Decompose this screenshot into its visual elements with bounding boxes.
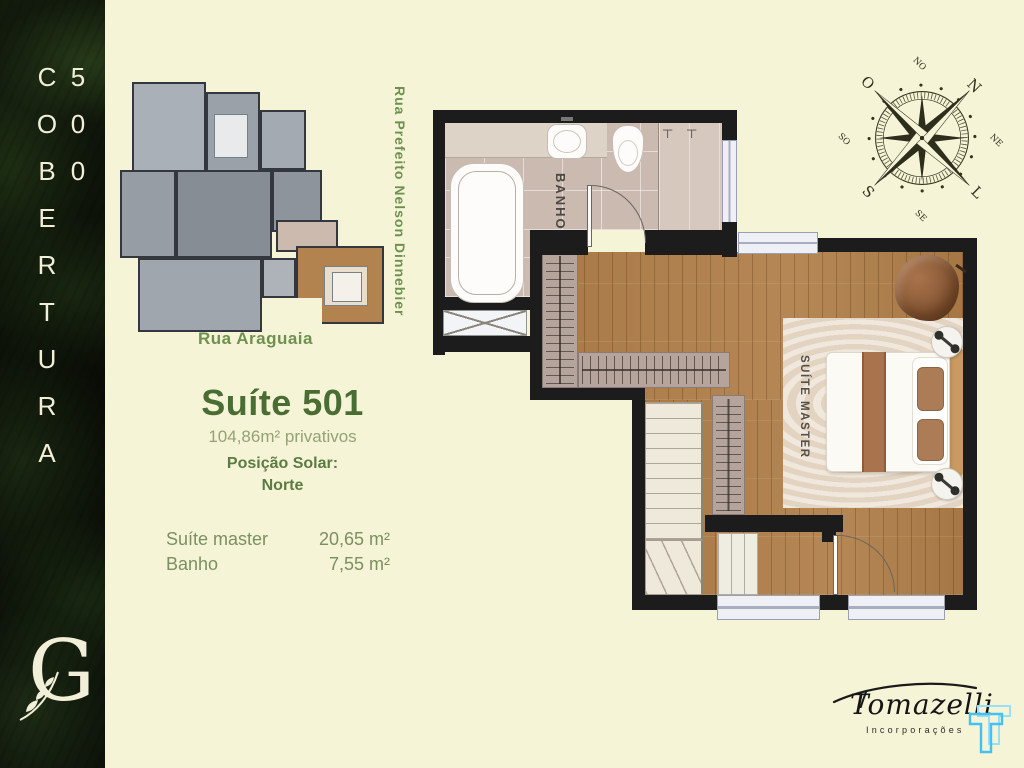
area-value: 20,65 m² [319, 527, 390, 552]
side-street-label: Rua Prefeito Nelson Dinnebier [392, 86, 408, 346]
overview-street-label: Rua Araguaia [118, 329, 393, 349]
overview-bed [214, 114, 248, 158]
brand-logo: Tomazelli Incorporações [826, 676, 1021, 762]
winder-stairs [645, 540, 703, 595]
sidebar-vertical-title: COBERTURA 500 [31, 62, 93, 662]
wall [820, 595, 848, 610]
wall [530, 388, 645, 400]
area-value: 7,55 m² [329, 552, 390, 577]
shower-area [658, 123, 722, 230]
monogram-g-logo: G [12, 616, 94, 736]
brand-t-icon [964, 702, 1014, 756]
compass-label-se: SE [913, 208, 929, 224]
closet-corridor [542, 252, 578, 388]
closet-corridor [578, 352, 730, 388]
nightstand [931, 326, 963, 358]
wall [963, 238, 977, 610]
overview-room [260, 110, 306, 170]
overview-room [120, 170, 176, 258]
closet-rail [716, 399, 741, 511]
area-name: Suíte master [166, 527, 268, 552]
wall [530, 238, 542, 400]
wall [645, 230, 737, 255]
compass-label-l: L [967, 183, 986, 202]
bathtub [450, 163, 524, 303]
solar-position-value: Norte [165, 477, 400, 495]
wall [945, 595, 977, 610]
unit-area-subtitle: 104,86m² privativos [165, 427, 400, 447]
bedroom-bottom-window [717, 595, 820, 620]
monogram-letter: G [28, 622, 94, 720]
overview-room [176, 170, 272, 258]
wall [705, 515, 843, 532]
wall [433, 336, 530, 352]
area-table: Suíte master 20,65 m² Banho 7,55 m² [166, 527, 390, 577]
area-name: Banho [166, 552, 218, 577]
bathroom-window [722, 140, 737, 227]
stairs [645, 402, 703, 540]
shower-head-icon: ┬ [663, 123, 672, 136]
decor-icon [938, 334, 955, 349]
faucet-icon [561, 117, 573, 121]
built-in-cabinet [717, 533, 758, 595]
area-row: Banho 7,55 m² [166, 552, 390, 577]
overview-floorplan [118, 74, 393, 336]
compass-rose: N NE L SE S SO O NO [836, 52, 1008, 224]
overview-room [138, 258, 262, 332]
armchair [895, 255, 959, 321]
bedroom-bottom-window [848, 595, 945, 620]
fixed-glass-window [443, 310, 527, 336]
bathroom-label: BANHO [553, 173, 568, 249]
solar-position-label: Posição Solar: [165, 455, 400, 473]
overview-suite-notch [296, 298, 322, 324]
closet-corridor [712, 395, 745, 515]
compass-label-o: O [857, 73, 878, 94]
shower-head-icon: ┬ [687, 123, 696, 136]
flyer-page: COBERTURA 500 G Rua Araguaia Rua Prefeit… [0, 0, 1024, 768]
area-row: Suíte master 20,65 m² [166, 527, 390, 552]
accent-pillow [917, 367, 944, 411]
unit-title: Suíte 501 [165, 382, 400, 424]
brand-tagline: Incorporações [866, 725, 965, 735]
compass-label-ne: NE [987, 132, 1004, 149]
overview-suite-bed [332, 272, 362, 302]
compass-label-no: NO [910, 56, 927, 73]
wall [632, 388, 645, 610]
bedroom-top-window [738, 232, 818, 254]
wall [632, 595, 717, 610]
closet-rail [582, 356, 726, 384]
overview-room [132, 82, 206, 180]
bedroom-label: SUÍTE MASTER [798, 355, 810, 470]
bed-throw [862, 352, 886, 472]
wall [722, 110, 737, 143]
sidebar-fern-photo: COBERTURA 500 G [0, 0, 105, 768]
wall [818, 238, 963, 252]
closet-rail [546, 256, 574, 384]
overview-room [262, 258, 296, 298]
decor-icon [938, 476, 955, 491]
sink [547, 124, 587, 159]
compass-label-so: SO [836, 132, 852, 148]
accent-pillow [917, 419, 944, 461]
nightstand [931, 468, 963, 500]
